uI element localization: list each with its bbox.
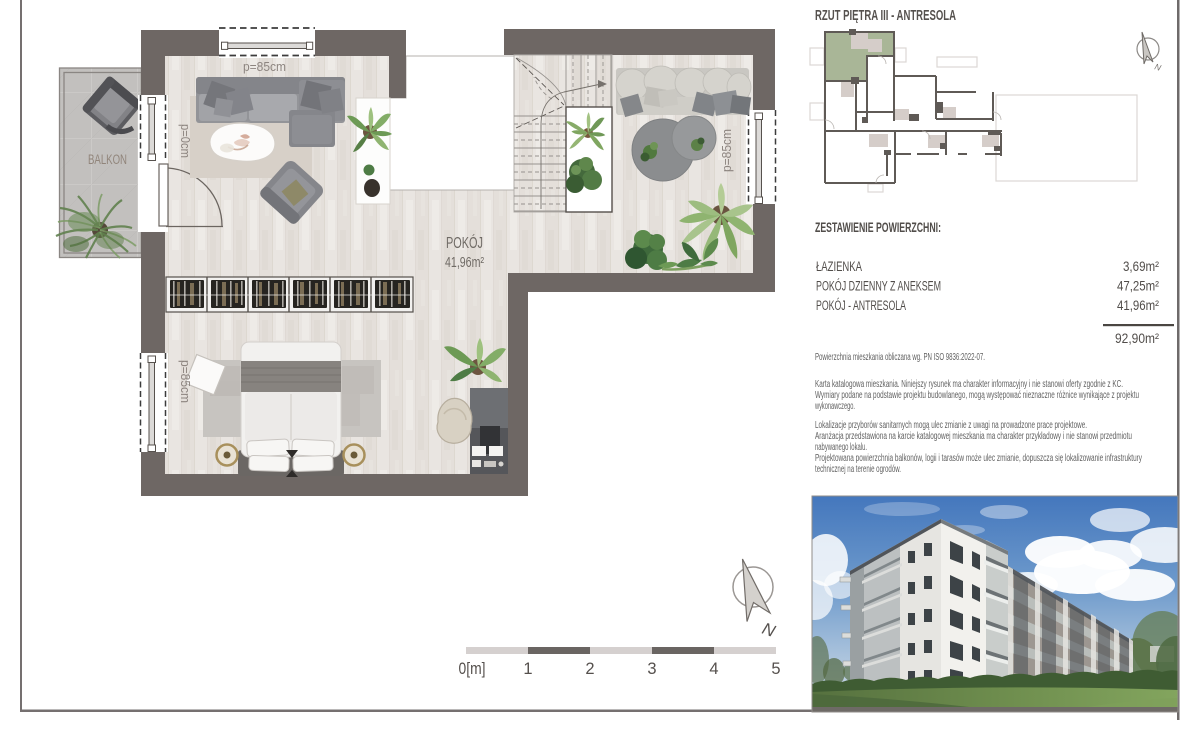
svg-text:3,69m²: 3,69m² [1123,259,1159,274]
svg-text:41,96m²: 41,96m² [1117,298,1159,313]
svg-text:3: 3 [647,660,656,678]
svg-text:4: 4 [709,660,718,678]
svg-text:RZUT PIĘTRA III - ANTRESOLA: RZUT PIĘTRA III - ANTRESOLA [815,8,956,24]
svg-text:p=0cm: p=0cm [178,124,193,158]
svg-text:technicznej na terenie ogrodów: technicznej na terenie ogrodów. [815,464,901,475]
svg-text:47,25m²: 47,25m² [1117,279,1159,294]
svg-text:p=85cm: p=85cm [243,59,286,74]
svg-text:5: 5 [771,660,780,678]
svg-text:41,96m²: 41,96m² [445,255,484,271]
svg-text:Wymiary podane na podstawie pr: Wymiary podane na podstawie projektu bud… [815,390,1139,401]
svg-text:Powierzchnia mieszkania oblicz: Powierzchnia mieszkania obliczana wg. PN… [815,352,985,363]
svg-text:92,90m²: 92,90m² [1115,331,1159,346]
svg-text:0[m]: 0[m] [459,660,486,678]
svg-text:2: 2 [585,660,594,678]
svg-text:1: 1 [523,660,532,678]
svg-text:Lokalizacje przyborów sanitarn: Lokalizacje przyborów sanitarnych mogą u… [815,420,1087,431]
svg-text:POKÓJ - ANTRESOLA: POKÓJ - ANTRESOLA [816,298,906,313]
svg-text:POKÓJ DZIENNY Z ANEKSEM: POKÓJ DZIENNY Z ANEKSEM [816,279,941,294]
svg-text:p=85cm: p=85cm [178,360,193,403]
svg-text:Karta katalogowa mieszkania. N: Karta katalogowa mieszkania. Niniejszy r… [815,379,1123,390]
svg-text:p=85cm: p=85cm [719,129,734,172]
svg-text:BALKON: BALKON [88,152,127,167]
svg-text:Projektowana powierzchnia balk: Projektowana powierzchnia balkonów, logi… [815,453,1142,464]
svg-text:Aranżacja przedstawiona na kar: Aranżacja przedstawiona na karcie katalo… [815,431,1132,442]
svg-text:ZESTAWIENIE POWIERZCHNI:: ZESTAWIENIE POWIERZCHNI: [815,219,941,235]
svg-text:ŁAZIENKA: ŁAZIENKA [816,259,862,274]
svg-text:nabywanego lokalu.: nabywanego lokalu. [815,442,867,453]
svg-text:wykonawczego.: wykonawczego. [814,401,855,412]
svg-text:POKÓJ: POKÓJ [446,233,483,252]
